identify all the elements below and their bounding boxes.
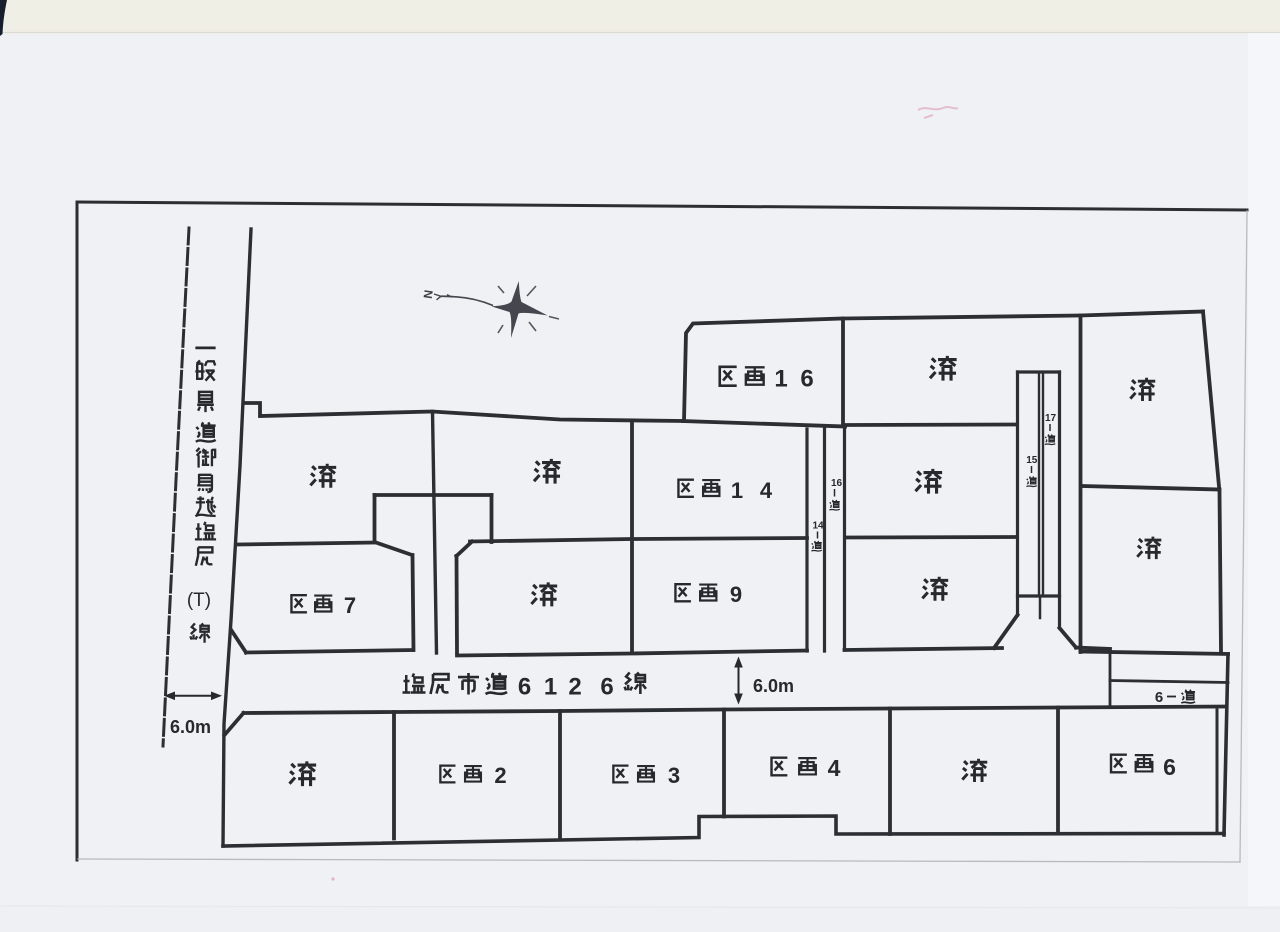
svg-text:6.0m: 6.0m [753, 676, 794, 696]
svg-text:14: 14 [812, 521, 824, 532]
svg-text:6: 6 [1155, 689, 1163, 706]
svg-text:4: 4 [828, 755, 841, 781]
svg-text:1: 1 [774, 366, 787, 393]
svg-text:1: 1 [731, 478, 743, 503]
svg-text:9: 9 [730, 582, 742, 607]
svg-text:6: 6 [518, 674, 531, 701]
svg-text:7: 7 [344, 593, 356, 618]
svg-text:4: 4 [760, 478, 773, 503]
svg-text:3: 3 [668, 763, 680, 788]
svg-text:2: 2 [494, 763, 506, 788]
svg-text:15: 15 [1026, 455, 1038, 466]
svg-text:(T): (T) [187, 590, 211, 611]
svg-text:6: 6 [800, 366, 813, 393]
svg-text:1: 1 [544, 674, 557, 701]
svg-text:6.0m: 6.0m [170, 717, 211, 737]
svg-text:6: 6 [1163, 754, 1176, 780]
svg-text:6: 6 [600, 674, 613, 701]
svg-text:2: 2 [568, 674, 581, 701]
svg-text:16: 16 [831, 478, 843, 489]
svg-text:17: 17 [1045, 413, 1057, 424]
